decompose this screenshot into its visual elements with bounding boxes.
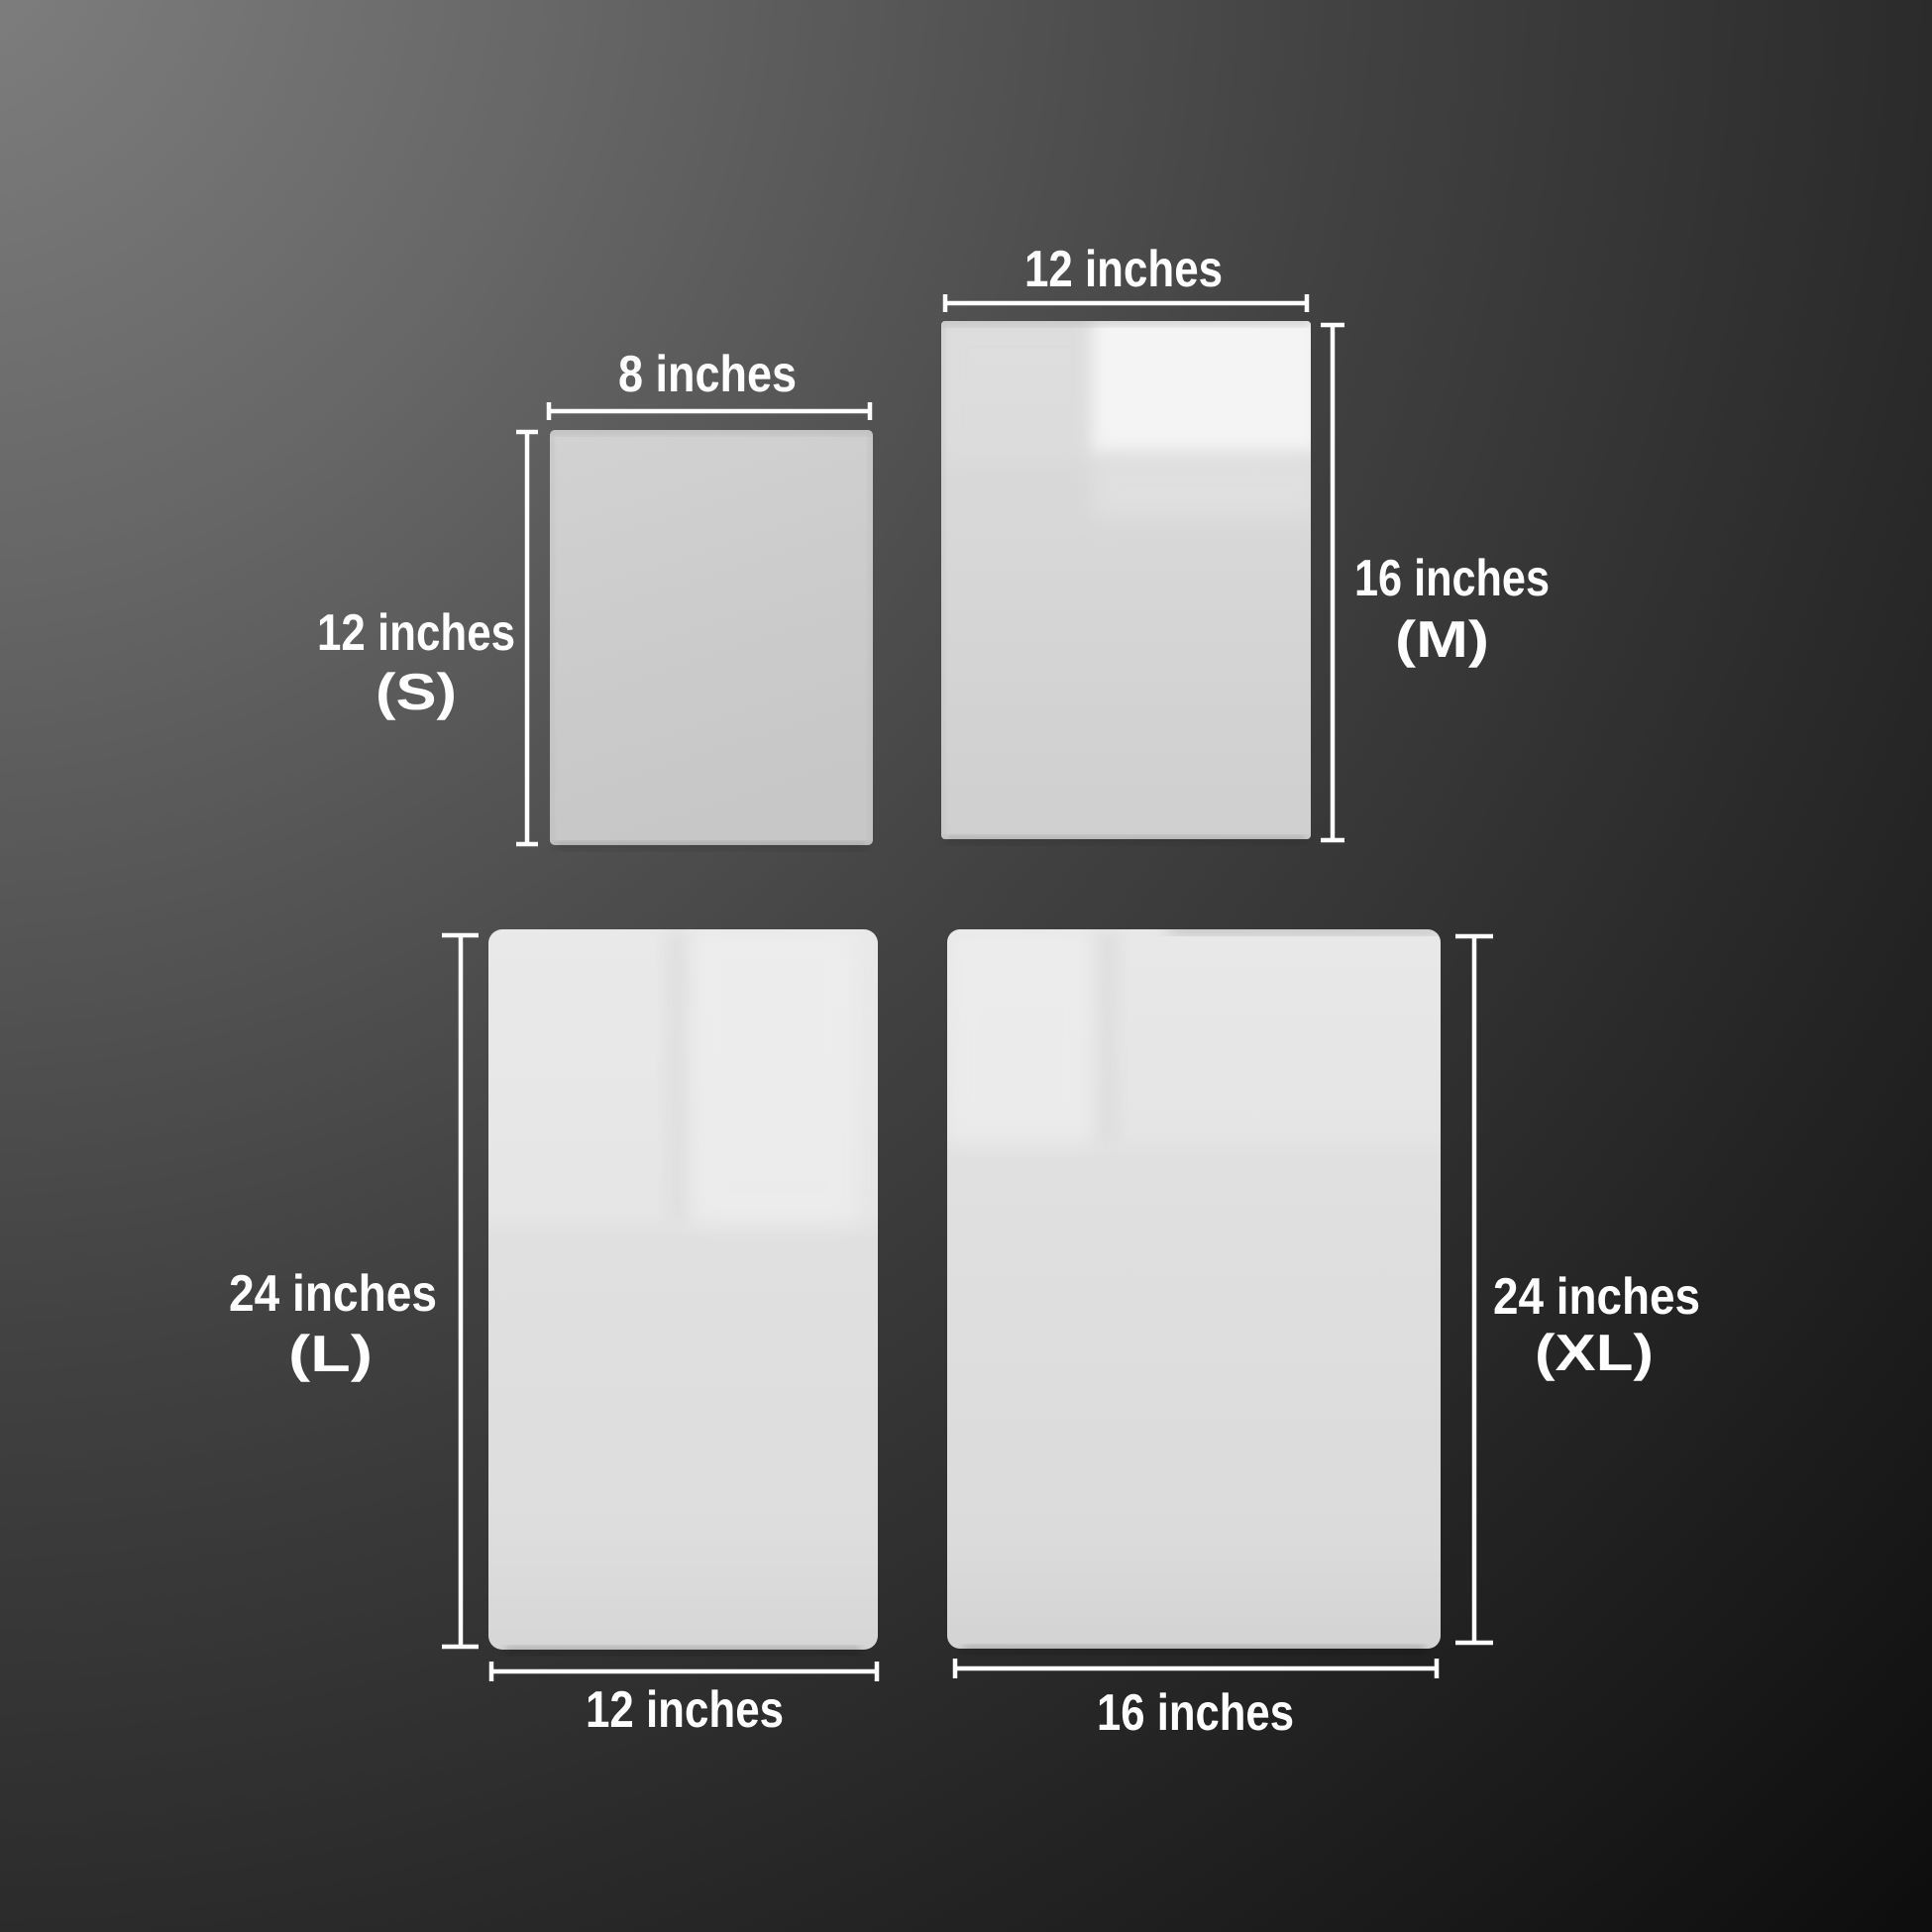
svg-text:(M): (M) (1395, 611, 1489, 669)
svg-text:12 inches: 12 inches (586, 1681, 784, 1739)
svg-text:(S): (S) (376, 664, 457, 721)
svg-text:12 inches: 12 inches (1024, 241, 1223, 298)
svg-text:16 inches: 16 inches (1097, 1684, 1294, 1742)
svg-text:24 inches: 24 inches (1493, 1268, 1700, 1326)
svg-text:(XL): (XL) (1535, 1325, 1654, 1382)
svg-text:(L): (L) (288, 1326, 373, 1383)
svg-text:8 inches: 8 inches (618, 346, 797, 403)
svg-text:12 inches: 12 inches (317, 604, 515, 662)
svg-text:16 inches: 16 inches (1354, 550, 1550, 607)
svg-text:24 inches: 24 inches (229, 1265, 437, 1323)
